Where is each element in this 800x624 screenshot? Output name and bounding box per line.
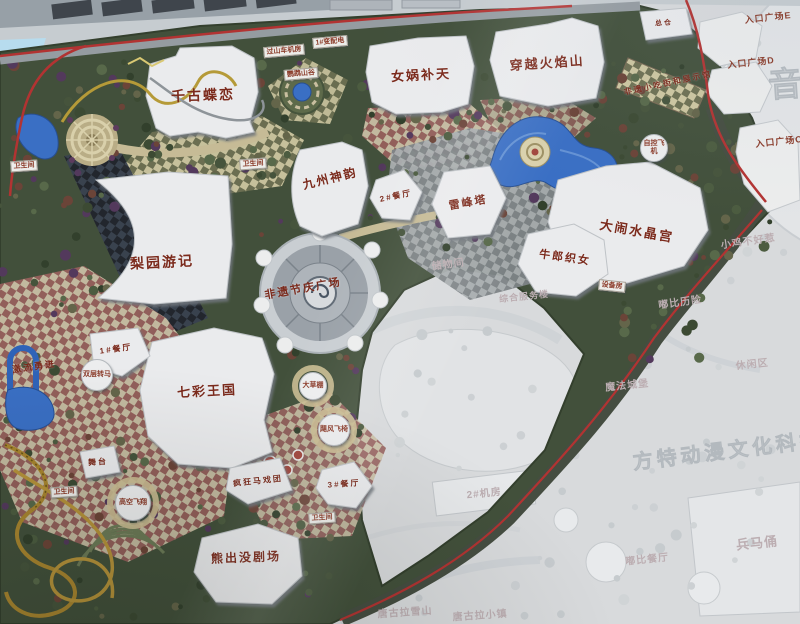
label-qicai-wangguo: 七彩王国 xyxy=(177,379,238,401)
label-tanggula-xiaozhen: 唐古拉小镇 xyxy=(452,605,508,624)
label-yinyue: 音乐 xyxy=(766,53,800,107)
label-bingmayong: 兵马俑 xyxy=(735,530,779,553)
label-zikong-feiji: 自控飞机 xyxy=(640,134,668,162)
label-weishengjian-1: 卫生间 xyxy=(10,160,38,173)
label-zonghe-fuwulou: 综合服务楼 xyxy=(498,287,549,305)
label-dubi-canting: 嘟比餐厅 xyxy=(624,548,669,568)
label-canting-1: 1#餐厅 xyxy=(99,341,133,356)
map-labels-layer: 千古蝶恋女娲补天穿越火焰山九州神韵雷峰塔大闹水晶宫牛郎织女梨园游记非遗节庆广场七… xyxy=(0,0,800,624)
park-map-photo: 千古蝶恋女娲补天穿越火焰山九州神韵雷峰塔大闹水晶宫牛郎织女梨园游记非遗节庆广场七… xyxy=(0,0,800,624)
label-tanggula-xueshan: 唐古拉雪山 xyxy=(377,602,433,621)
label-danao-shuijinggong: 大闹水晶宫 xyxy=(598,214,675,246)
label-feiyi-jieqing-plaza: 非遗节庆广场 xyxy=(263,273,343,302)
label-bianpeidian-1: 1#变配电 xyxy=(312,35,348,49)
label-guoshanche-jifang: 过山车机房 xyxy=(263,44,305,59)
label-yingwu-shangu: 鹦鹉山谷 xyxy=(284,67,319,81)
label-dubi-lixian: 嘟比历险 xyxy=(657,291,703,312)
label-jifang-2: 2#机房 xyxy=(466,483,503,502)
label-niulang-zhinv: 牛郎织女 xyxy=(538,245,592,268)
label-shuangceng-zhuanma: 双层转马 xyxy=(81,359,113,391)
label-jiuzhou-shenyun: 九州神韵 xyxy=(301,163,359,193)
label-liyuan-youji: 梨园游记 xyxy=(130,250,195,273)
label-leifengta: 雷峰塔 xyxy=(447,191,488,214)
label-entrance-plaza-e: 入口广场E xyxy=(744,8,792,26)
label-jiliu-yongjin: 激流勇进 xyxy=(11,357,56,376)
label-chuwujian: 储物间 xyxy=(431,253,466,272)
label-gaokong-feixiang: 高空飞翔 xyxy=(115,485,151,521)
label-nuwa-butian: 女娲补天 xyxy=(391,63,452,85)
label-qiangu-dielian: 千古蝶恋 xyxy=(171,84,236,106)
label-xiuxianqu: 休闲区 xyxy=(735,354,769,372)
label-shebeifang: 设备房 xyxy=(598,279,626,293)
label-xiongchumo-theater: 熊出没剧场 xyxy=(211,547,282,566)
label-weishengjian-3: 卫生间 xyxy=(50,486,78,499)
label-entrance-plaza-c: 入口广场C xyxy=(755,132,800,150)
label-fengkuang-maxituan: 疯狂马戏团 xyxy=(233,473,284,489)
label-xiaoji-buhaore: 小鸡不好惹 xyxy=(720,229,777,252)
label-canting-3: 3#餐厅 xyxy=(327,477,361,490)
label-dacaopeng: 大草棚 xyxy=(299,372,327,400)
label-fangte-donman: 方特动漫文化科技 xyxy=(631,423,800,475)
label-wutai: 舞台 xyxy=(88,456,109,468)
label-jufeng-feiyi: 飓风飞椅 xyxy=(318,414,350,446)
label-weishengjian-4: 卫生间 xyxy=(308,512,336,525)
label-zongcang: 总仓 xyxy=(655,17,674,28)
label-mofa-chengbao: 魔法城堡 xyxy=(604,374,649,394)
label-feiyi-xiaochi-street: 非遗小吃街和展示馆 xyxy=(623,68,713,97)
label-canting-2: 2#餐厅 xyxy=(379,187,413,205)
label-weishengjian-2: 卫生间 xyxy=(239,158,267,171)
label-chuanyue-huoyanshan: 穿越火焰山 xyxy=(509,50,585,74)
